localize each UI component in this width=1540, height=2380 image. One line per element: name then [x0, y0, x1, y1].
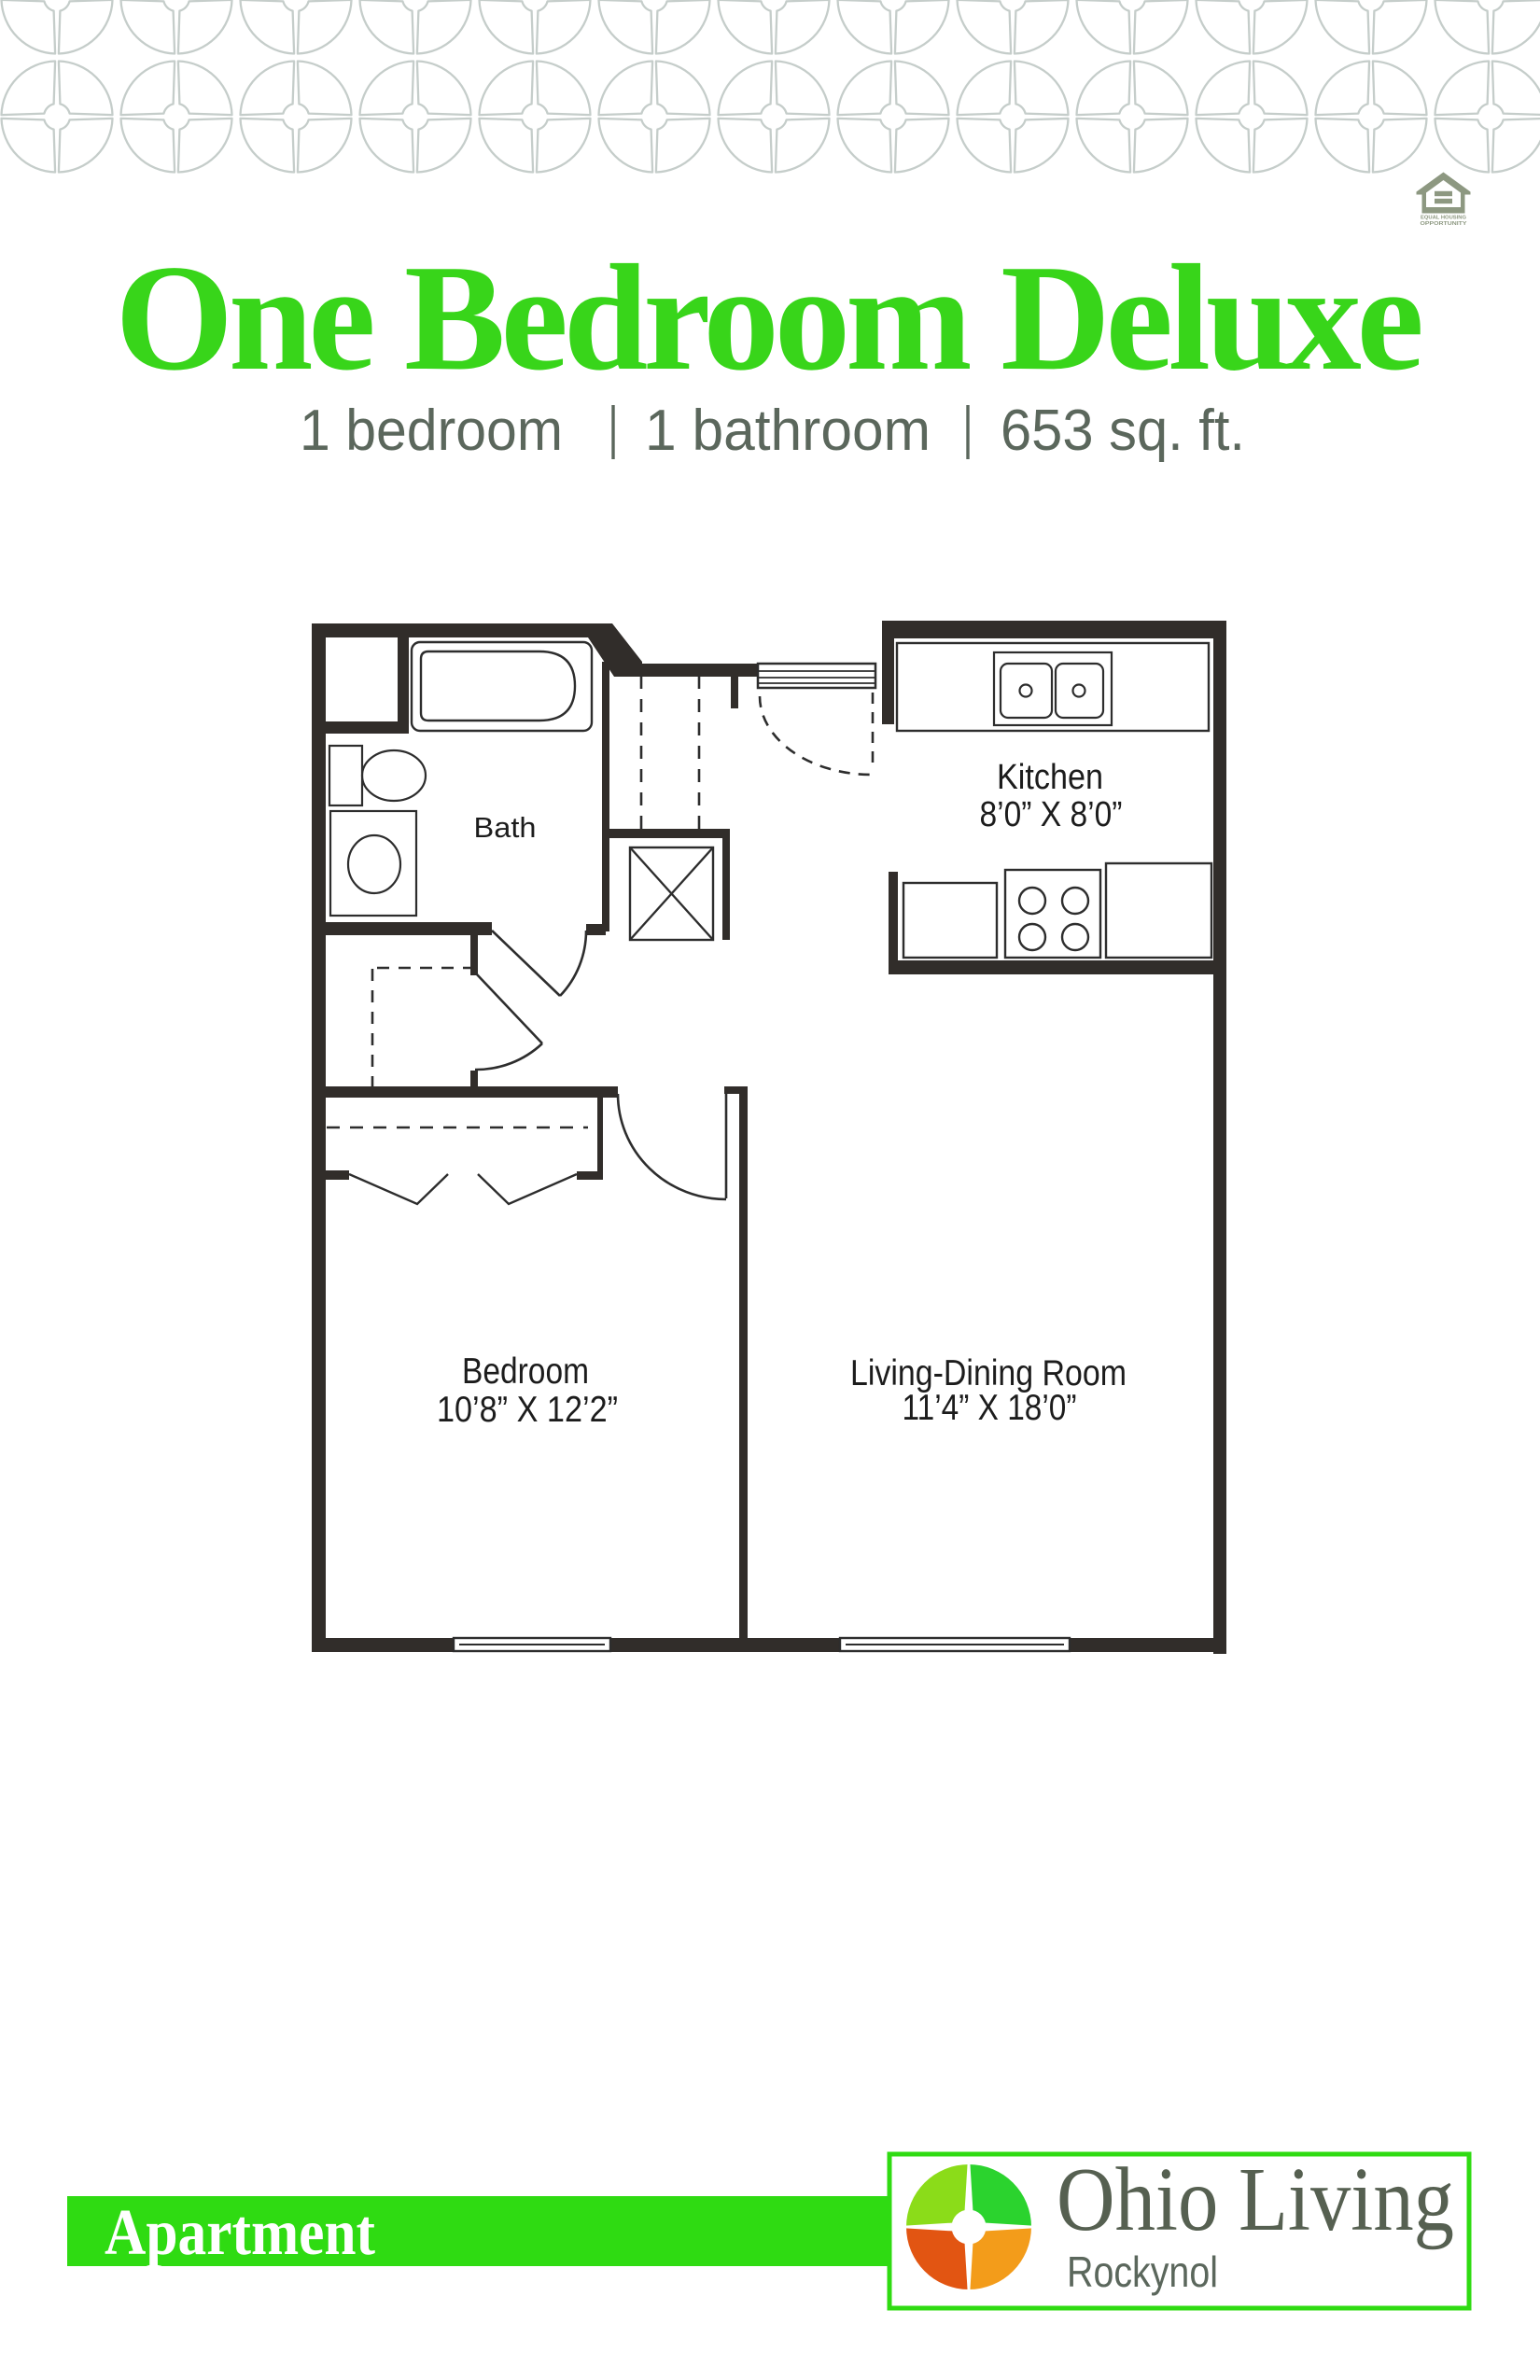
svg-text:8’0” X 8’0”: 8’0” X 8’0”	[980, 795, 1123, 834]
svg-text:Rockynol: Rockynol	[1067, 2247, 1218, 2296]
svg-text:Apartment: Apartment	[105, 2197, 375, 2269]
svg-text:OPPORTUNITY: OPPORTUNITY	[1421, 221, 1467, 227]
svg-text:653 sq. ft.: 653 sq. ft.	[1001, 399, 1245, 463]
svg-text:Bath: Bath	[474, 811, 537, 844]
svg-text:EQUAL HOUSING: EQUAL HOUSING	[1421, 216, 1466, 221]
svg-text:10’8” X 12’2”: 10’8” X 12’2”	[437, 1390, 618, 1430]
svg-text:1 bedroom: 1 bedroom	[300, 399, 563, 463]
svg-text:11’4” X 18’0”: 11’4” X 18’0”	[903, 1388, 1077, 1428]
svg-text:Kitchen: Kitchen	[997, 758, 1103, 797]
svg-text:1 bathroom: 1 bathroom	[645, 399, 931, 463]
svg-text:Bedroom: Bedroom	[462, 1351, 589, 1392]
svg-text:Ohio Living: Ohio Living	[1057, 2149, 1454, 2250]
svg-text:One Bedroom Deluxe: One Bedroom Deluxe	[115, 234, 1421, 402]
